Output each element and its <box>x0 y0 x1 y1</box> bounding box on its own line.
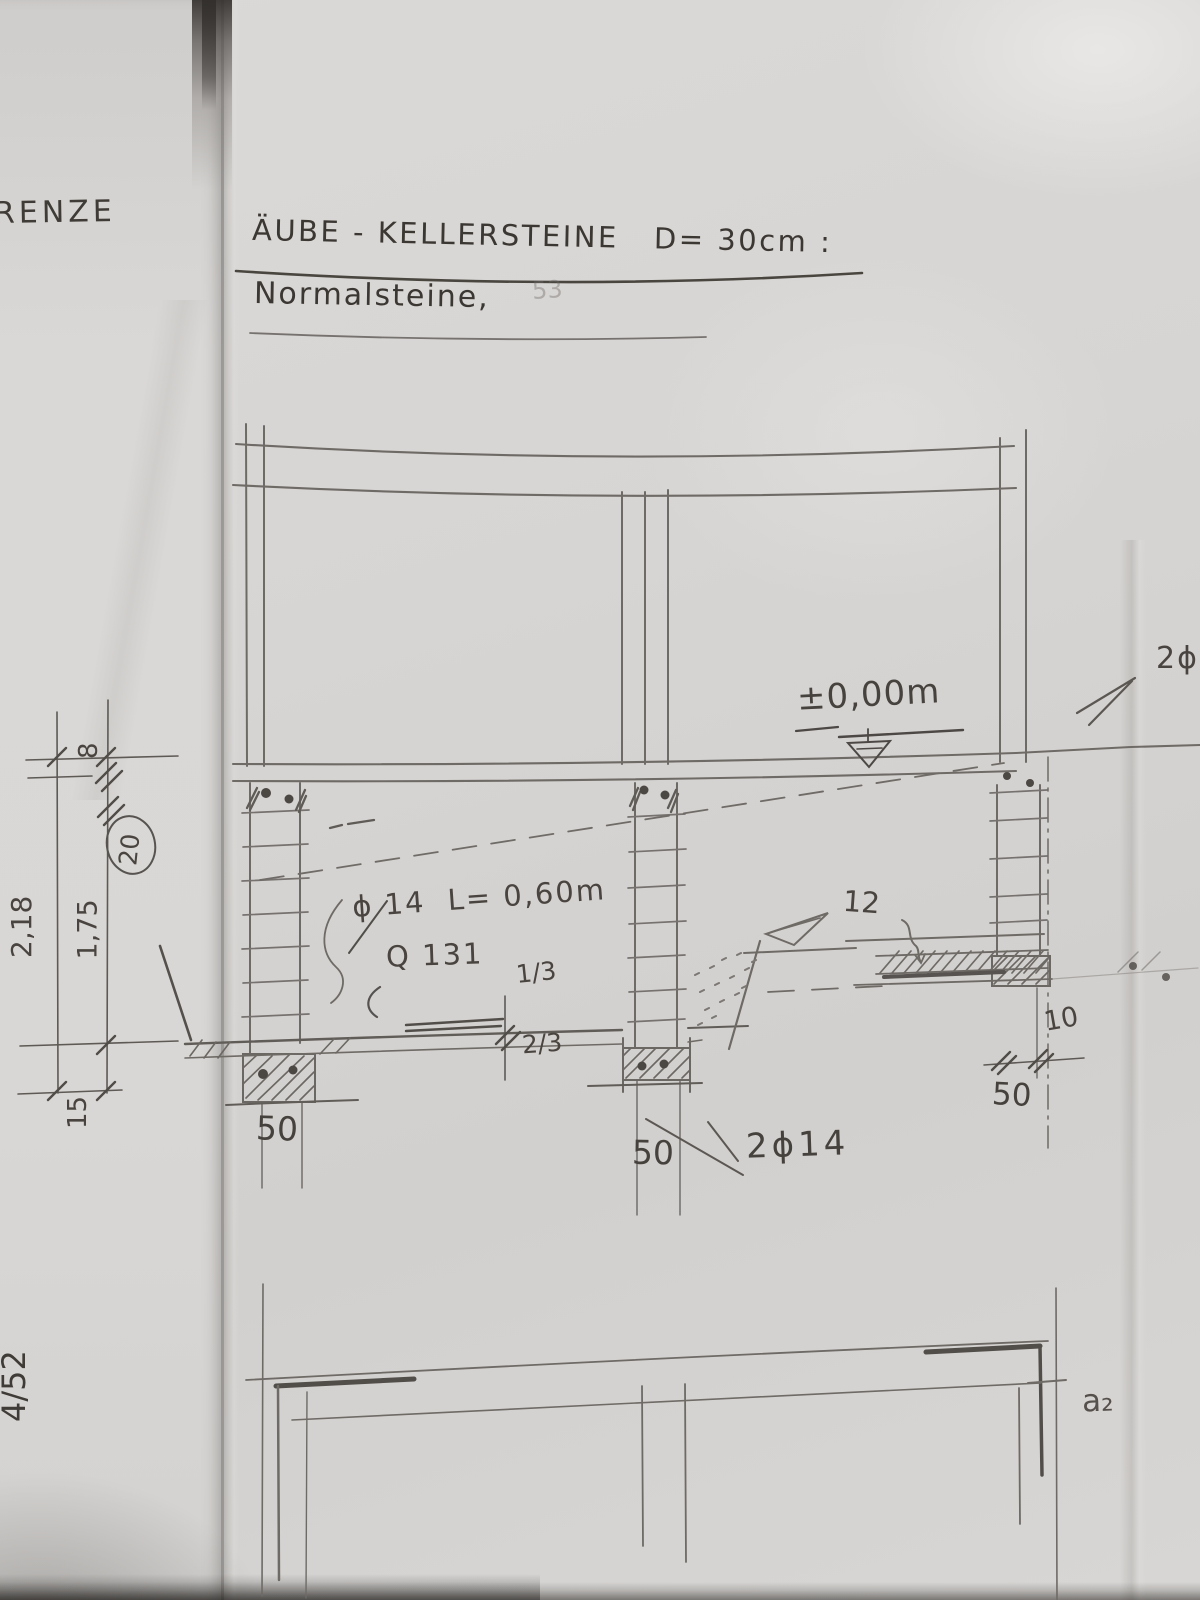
footing-width-left-label: 50 <box>255 1111 298 1145</box>
dim-inner-label: 1,75 <box>75 900 102 960</box>
slab-thickness-label: 12 <box>842 887 881 919</box>
photographed-sketch-page: RENZE ÄUBE - KELLERSTEINE D= 30cm : Norm… <box>0 0 1200 1600</box>
mesh-note-label: Q 131 <box>386 939 484 971</box>
drawing-title-line2: Normalsteine, <box>254 279 490 313</box>
offset-ten-label: 10 <box>1042 1003 1081 1036</box>
footing-width-middle-label: 50 <box>632 1136 675 1170</box>
fraction-top-label: 1/3 <box>515 958 558 987</box>
dim-overall-label: 2,18 <box>8 898 36 958</box>
dim-footing-label: 15 <box>65 1085 91 1129</box>
margin-note-grenze: RENZE <box>0 197 116 229</box>
corner-note-label: 4/52 <box>0 1350 30 1422</box>
dim-circled-label: 20 <box>115 820 144 866</box>
edge-rebar-label: 2ϕ <box>1156 644 1199 674</box>
fraction-bottom-label: 2/3 <box>521 1030 563 1058</box>
detail-mark-label: a₂ <box>1081 1385 1114 1417</box>
level-zero-label: ±0,00m <box>796 674 941 715</box>
faint-pencil-mark: 53 <box>531 277 563 303</box>
bottom-rebar-label: 2ϕ14 <box>745 1126 849 1164</box>
dim-top-label: 8 <box>76 725 102 759</box>
footing-width-right-label: 50 <box>991 1079 1032 1112</box>
